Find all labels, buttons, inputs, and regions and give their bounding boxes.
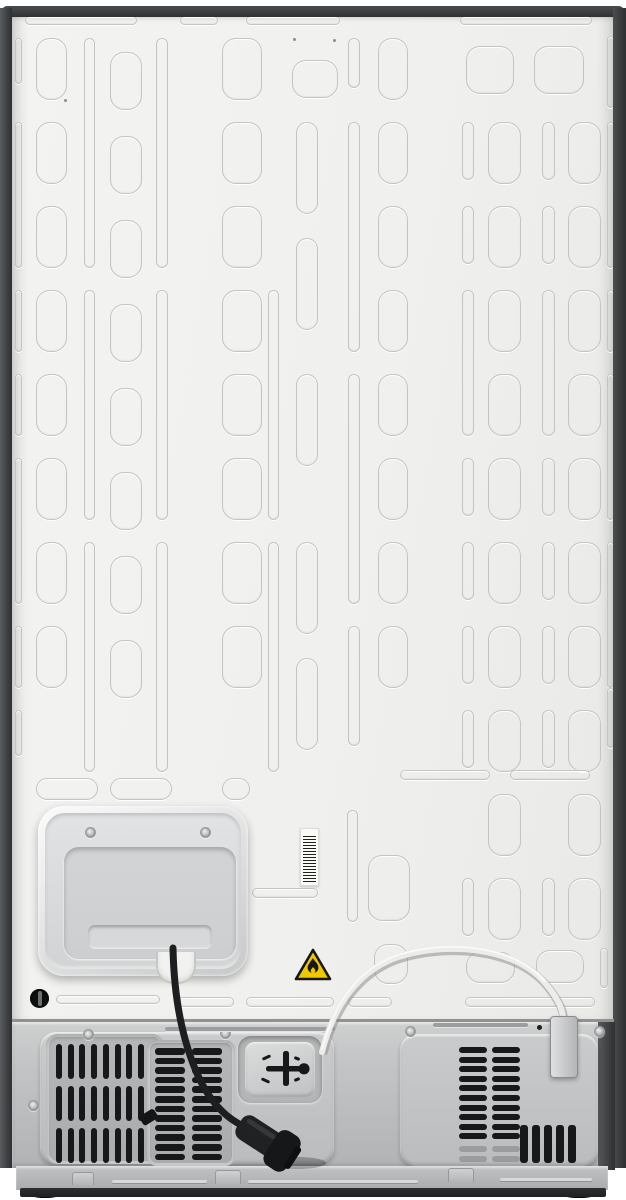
emboss-shape bbox=[296, 238, 318, 330]
emboss-dot bbox=[293, 38, 296, 41]
emboss-shape bbox=[368, 855, 410, 921]
right-grille-slot bbox=[459, 1114, 487, 1120]
compartment-screw bbox=[594, 1026, 605, 1037]
emboss-shape bbox=[84, 38, 95, 268]
emboss-shape bbox=[462, 878, 474, 936]
compartment-hole bbox=[537, 1025, 542, 1030]
right-grille-slot bbox=[459, 1124, 487, 1130]
mid-grille-slot bbox=[155, 1077, 185, 1084]
emboss-shape bbox=[378, 290, 408, 352]
emboss-shape bbox=[36, 290, 67, 352]
emboss-shape bbox=[568, 878, 601, 940]
emboss-shape bbox=[36, 38, 67, 100]
emboss-shape bbox=[378, 542, 408, 604]
emboss-shape bbox=[488, 710, 521, 772]
emboss-shape bbox=[536, 950, 584, 983]
mid-grille-slot bbox=[192, 1058, 222, 1065]
emboss-shape bbox=[488, 206, 521, 268]
right-grille-ghost-slot bbox=[459, 1146, 487, 1152]
emboss-shape bbox=[542, 206, 555, 264]
mid-grille-slot bbox=[192, 1077, 222, 1084]
mid-grille-slot bbox=[192, 1086, 222, 1093]
left-grille-slot bbox=[56, 1086, 62, 1121]
emboss-shape bbox=[488, 626, 521, 688]
mid-grille-slot bbox=[192, 1125, 222, 1132]
left-grille-slot bbox=[138, 1086, 144, 1121]
left-grille-slot bbox=[56, 1044, 62, 1079]
right-grille-slot bbox=[459, 1047, 487, 1053]
mid-grille-slot bbox=[155, 1144, 185, 1151]
emboss-shape bbox=[36, 374, 67, 436]
emboss-shape bbox=[15, 458, 22, 604]
emboss-shape bbox=[296, 658, 318, 750]
emboss-shape bbox=[296, 374, 318, 466]
emboss-shape bbox=[510, 770, 590, 780]
emboss-shape bbox=[534, 46, 584, 94]
emboss-shape bbox=[110, 136, 142, 194]
left-grille-slot bbox=[79, 1128, 85, 1163]
right-grille-slot bbox=[492, 1057, 520, 1063]
left-grille-slot bbox=[56, 1128, 62, 1163]
emboss-shape bbox=[110, 304, 142, 362]
mid-grille-slot bbox=[155, 1106, 185, 1113]
emboss-shape bbox=[542, 122, 555, 180]
fridge-right-side-lower bbox=[598, 1022, 615, 1170]
left-grille-slot bbox=[126, 1044, 132, 1079]
emboss-shape bbox=[348, 374, 360, 604]
left-grille-slot bbox=[91, 1128, 97, 1163]
fridge-left-edge bbox=[0, 8, 12, 1168]
emboss-shape bbox=[15, 374, 22, 436]
emboss-shape bbox=[36, 778, 98, 800]
drain-slit bbox=[38, 991, 42, 1006]
emboss-shape bbox=[246, 16, 340, 25]
emboss-shape bbox=[348, 997, 392, 1007]
left-grille-slot bbox=[138, 1128, 144, 1163]
emboss-shape bbox=[466, 952, 515, 983]
emboss-shape bbox=[460, 16, 592, 25]
drain-hole bbox=[30, 989, 49, 1008]
emboss-shape bbox=[110, 778, 172, 800]
emboss-shape bbox=[178, 997, 234, 1007]
left-grille-slot bbox=[126, 1086, 132, 1121]
left-grille-slot bbox=[68, 1086, 74, 1121]
emboss-shape bbox=[25, 16, 137, 25]
right-grille-slot bbox=[492, 1114, 520, 1120]
right-grille-slot bbox=[459, 1085, 487, 1091]
emboss-shape bbox=[268, 542, 279, 772]
emboss-shape bbox=[222, 374, 262, 436]
emboss-shape bbox=[488, 374, 521, 436]
emboss-shape bbox=[156, 542, 168, 772]
plinth-tab bbox=[448, 1168, 474, 1182]
emboss-shape bbox=[542, 458, 555, 516]
mid-grille-slot bbox=[155, 1154, 185, 1161]
refrigerator-back-view: Rear view of a refrigerator bbox=[0, 0, 626, 1200]
fridge-top-edge bbox=[2, 6, 624, 17]
emboss-shape bbox=[36, 206, 67, 268]
emboss-shape bbox=[110, 220, 142, 278]
mid-grille-slot bbox=[192, 1106, 222, 1113]
left-grille-slot bbox=[115, 1086, 121, 1121]
emboss-shape bbox=[222, 778, 250, 800]
emboss-shape bbox=[488, 794, 521, 856]
emboss-shape bbox=[568, 374, 601, 436]
emboss-shape bbox=[465, 997, 595, 1007]
access-panel-face bbox=[45, 813, 241, 969]
left-grille-slot bbox=[103, 1044, 109, 1079]
emboss-shape bbox=[568, 710, 601, 772]
left-grille-slot bbox=[91, 1044, 97, 1079]
emboss-shape bbox=[378, 458, 408, 520]
left-grille-slot bbox=[115, 1128, 121, 1163]
left-grille-slot bbox=[138, 1044, 144, 1079]
fridge-right-edge bbox=[613, 8, 626, 1168]
emboss-shape bbox=[542, 878, 555, 936]
emboss-shape bbox=[378, 38, 408, 100]
emboss-shape bbox=[15, 290, 22, 352]
right-grille-slot bbox=[492, 1133, 520, 1139]
emboss-shape bbox=[568, 290, 601, 352]
left-grille-slot bbox=[115, 1044, 121, 1079]
left-grille-slot bbox=[68, 1044, 74, 1079]
access-panel-screw bbox=[85, 827, 96, 838]
emboss-shape bbox=[268, 290, 279, 520]
emboss-shape bbox=[222, 38, 262, 100]
left-grille-slot bbox=[79, 1044, 85, 1079]
water-valve-icon bbox=[257, 1048, 313, 1092]
access-panel-handle-slot bbox=[88, 925, 212, 949]
emboss-shape bbox=[110, 388, 142, 446]
emboss-shape bbox=[84, 290, 95, 520]
right-grille-ghost-slot bbox=[492, 1146, 520, 1152]
right-grille-slot bbox=[492, 1095, 520, 1101]
mid-grille-slot bbox=[155, 1058, 185, 1065]
emboss-shape bbox=[378, 206, 408, 268]
emboss-shape bbox=[296, 542, 318, 634]
rail-groove bbox=[433, 1023, 528, 1027]
emboss-shape bbox=[222, 122, 262, 184]
emboss-shape bbox=[292, 60, 338, 98]
emboss-shape bbox=[488, 542, 521, 604]
emboss-shape bbox=[156, 38, 168, 268]
emboss-shape bbox=[568, 626, 601, 688]
emboss-shape bbox=[568, 542, 601, 604]
barcode-stripes bbox=[303, 834, 316, 882]
plinth-groove bbox=[112, 1180, 207, 1183]
right-grille-slot bbox=[492, 1085, 520, 1091]
bottom-vent-slot bbox=[556, 1125, 564, 1163]
emboss-shape bbox=[110, 472, 142, 530]
compartment-screw bbox=[405, 1026, 416, 1037]
bottom-vent-slot bbox=[532, 1125, 540, 1163]
emboss-shape bbox=[222, 290, 262, 352]
water-tube-fitting bbox=[550, 1016, 578, 1078]
mid-grille-slot bbox=[192, 1067, 222, 1074]
bottom-vent-slot bbox=[544, 1125, 552, 1163]
plinth-tab bbox=[72, 1172, 94, 1185]
emboss-shape bbox=[488, 290, 521, 352]
right-grille-slot bbox=[492, 1047, 520, 1053]
right-grille-slot bbox=[492, 1105, 520, 1111]
mid-grille-slot bbox=[192, 1096, 222, 1103]
left-grille-slot bbox=[68, 1128, 74, 1163]
emboss-shape bbox=[462, 206, 474, 264]
emboss-shape bbox=[347, 810, 358, 922]
emboss-shape bbox=[400, 770, 490, 780]
mid-grille-slot bbox=[192, 1144, 222, 1151]
right-grille-slot bbox=[492, 1076, 520, 1082]
emboss-shape bbox=[378, 374, 408, 436]
emboss-shape bbox=[378, 626, 408, 688]
left-grille-slot bbox=[79, 1086, 85, 1121]
right-grille-slot bbox=[459, 1133, 487, 1139]
emboss-shape bbox=[488, 458, 521, 520]
emboss-dot bbox=[333, 39, 336, 42]
emboss-shape bbox=[378, 122, 408, 184]
right-grille-ghost-slot bbox=[492, 1156, 520, 1162]
emboss-shape bbox=[568, 458, 601, 520]
emboss-shape bbox=[15, 38, 22, 84]
emboss-shape bbox=[542, 710, 555, 768]
emboss-shape bbox=[568, 206, 601, 268]
compressor-access-panel bbox=[38, 806, 248, 976]
right-grille-slot bbox=[492, 1066, 520, 1072]
barcode-label bbox=[300, 828, 319, 886]
emboss-shape bbox=[600, 948, 608, 988]
emboss-shape bbox=[15, 626, 22, 688]
mid-grille-slot bbox=[192, 1115, 222, 1122]
emboss-shape bbox=[542, 542, 555, 600]
mid-grille-slot bbox=[192, 1134, 222, 1141]
emboss-shape bbox=[462, 290, 474, 436]
mid-grille-slot bbox=[155, 1048, 185, 1055]
rail-groove bbox=[165, 1027, 335, 1031]
plinth-groove bbox=[248, 1180, 418, 1183]
mid-grille-slot bbox=[192, 1154, 222, 1161]
right-grille-slot bbox=[459, 1105, 487, 1111]
access-panel-recess bbox=[64, 847, 236, 959]
emboss-shape bbox=[252, 888, 318, 898]
bottom-vent-slot bbox=[568, 1125, 576, 1163]
right-grille-slot bbox=[459, 1095, 487, 1101]
emboss-shape bbox=[56, 995, 160, 1004]
emboss-shape bbox=[36, 626, 67, 688]
emboss-shape bbox=[542, 290, 555, 436]
emboss-shape bbox=[246, 997, 334, 1007]
emboss-shape bbox=[222, 458, 262, 520]
emboss-shape bbox=[568, 794, 601, 856]
emboss-dot bbox=[64, 99, 67, 102]
water-valve-recess bbox=[238, 1036, 322, 1103]
emboss-shape bbox=[462, 626, 474, 684]
emboss-shape bbox=[222, 542, 262, 604]
emboss-shape bbox=[348, 122, 360, 352]
emboss-shape bbox=[222, 206, 262, 268]
emboss-shape bbox=[462, 458, 474, 516]
mid-grille-slot bbox=[192, 1048, 222, 1055]
emboss-shape bbox=[222, 626, 262, 688]
mid-grille-slot bbox=[155, 1115, 185, 1122]
emboss-shape bbox=[296, 122, 318, 214]
emboss-shape bbox=[84, 542, 95, 772]
emboss-shape bbox=[110, 640, 142, 698]
compartment-screw bbox=[28, 1100, 39, 1111]
access-panel-screw bbox=[200, 827, 211, 838]
flammable-warning-icon bbox=[293, 947, 333, 983]
bottom-vent-slot bbox=[520, 1125, 528, 1163]
emboss-shape bbox=[15, 122, 22, 268]
emboss-shape bbox=[374, 944, 408, 984]
mid-grille-slot bbox=[155, 1067, 185, 1074]
emboss-shape bbox=[466, 46, 514, 94]
emboss-shape bbox=[542, 626, 555, 684]
emboss-shape bbox=[36, 122, 67, 184]
plinth-groove bbox=[500, 1178, 592, 1181]
emboss-shape bbox=[488, 878, 521, 940]
left-grille-slot bbox=[103, 1128, 109, 1163]
emboss-shape bbox=[348, 626, 360, 746]
emboss-shape bbox=[156, 290, 168, 520]
emboss-shape bbox=[110, 556, 142, 614]
emboss-shape bbox=[180, 16, 218, 25]
emboss-shape bbox=[15, 710, 22, 756]
emboss-shape bbox=[36, 458, 67, 520]
emboss-shape bbox=[568, 122, 601, 184]
left-grille-slot bbox=[103, 1086, 109, 1121]
plinth-tab bbox=[215, 1170, 241, 1184]
mid-grille-slot bbox=[155, 1096, 185, 1103]
emboss-shape bbox=[462, 542, 474, 600]
emboss-shape bbox=[462, 710, 474, 768]
emboss-shape bbox=[36, 542, 67, 604]
right-grille-slot bbox=[459, 1066, 487, 1072]
left-grille-slot bbox=[91, 1086, 97, 1121]
mid-grille-slot bbox=[155, 1086, 185, 1093]
mid-grille-slot bbox=[155, 1125, 185, 1132]
emboss-shape bbox=[348, 38, 360, 88]
left-grille-slot bbox=[126, 1128, 132, 1163]
compartment-screw bbox=[83, 1029, 94, 1040]
right-grille-slot bbox=[492, 1124, 520, 1130]
right-grille-ghost-slot bbox=[459, 1156, 487, 1162]
right-grille-slot bbox=[459, 1057, 487, 1063]
water-valve-plate bbox=[245, 1042, 315, 1097]
base-bar bbox=[20, 1188, 606, 1197]
mid-grille-slot bbox=[155, 1134, 185, 1141]
cord-exit-notch bbox=[156, 952, 196, 984]
emboss-shape bbox=[488, 122, 521, 184]
emboss-shape bbox=[462, 122, 474, 180]
emboss-shape bbox=[110, 52, 142, 110]
right-grille-slot bbox=[459, 1076, 487, 1082]
